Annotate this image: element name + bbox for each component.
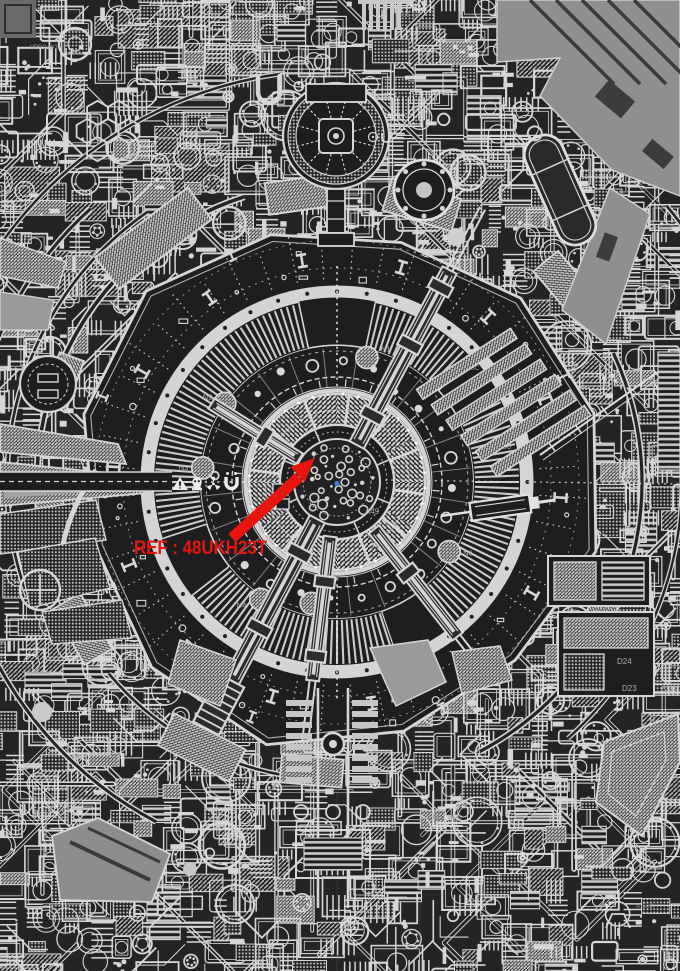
svg-text:REF : 48UKH23T: REF : 48UKH23T	[134, 537, 267, 559]
svg-text:VPRC-W3: VPRC-W3	[30, 45, 58, 51]
svg-text:A-500: A-500	[636, 903, 654, 910]
svg-text:A49: A49	[365, 507, 380, 516]
svg-text:N4: N4	[237, 600, 247, 609]
svg-text:CR2: CR2	[58, 354, 72, 361]
svg-text:D23: D23	[622, 684, 637, 693]
svg-text:N6: N6	[463, 549, 473, 558]
svg-text:N3: N3	[179, 463, 189, 472]
svg-text:N2: N2	[203, 392, 213, 401]
svg-text:D24: D24	[617, 657, 632, 666]
svg-text:ECE-23: ECE-23	[398, 13, 420, 19]
svg-text:N1: N1	[381, 345, 391, 354]
svg-text:728 ERT 9378: 728 ERT 9378	[420, 814, 462, 821]
